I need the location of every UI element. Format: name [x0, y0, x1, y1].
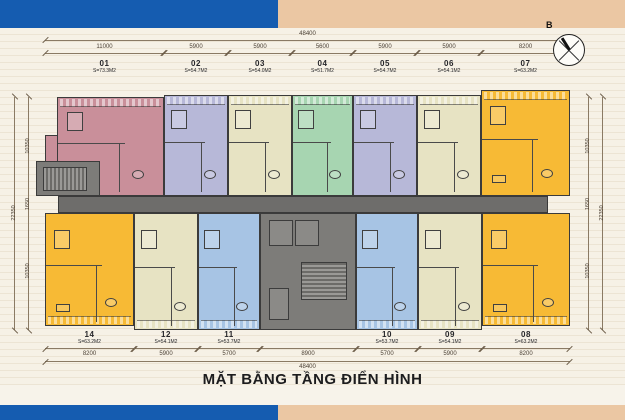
interior-wall — [390, 142, 391, 193]
table-symbol — [541, 169, 553, 178]
unit-02 — [164, 95, 228, 196]
interior-wall — [46, 265, 102, 266]
interior-wall — [201, 142, 202, 193]
bottom-band-blue — [0, 405, 278, 420]
balcony — [167, 97, 225, 105]
dim-bottom-4: 8900 — [260, 348, 356, 359]
unit-11-label: 11S=53.7M2 — [198, 331, 260, 345]
interior-wall — [165, 142, 205, 143]
table-symbol — [329, 170, 341, 179]
interior-wall — [171, 267, 172, 326]
dim-top-1: 11000 — [45, 42, 164, 54]
balcony — [48, 316, 131, 324]
unit-01-label: 01S=73.3M2 — [45, 60, 164, 74]
central-core — [260, 213, 356, 330]
unit-03 — [228, 95, 292, 196]
top-band-blue — [0, 0, 278, 28]
dim-left-seg-2: 1650 — [25, 184, 31, 224]
title-background-strip — [0, 385, 625, 405]
elevator — [269, 220, 293, 246]
interior-wall — [454, 142, 455, 193]
balcony — [201, 320, 257, 328]
unit-07 — [481, 90, 570, 196]
interior-wall — [354, 142, 394, 143]
interior-wall — [392, 267, 393, 326]
dim-right-seg-1: 10350 — [585, 126, 591, 166]
unit-10-label: 10S=53.7M2 — [356, 331, 418, 345]
unit-05-label: 05S=54.7M2 — [353, 60, 417, 74]
service-room — [269, 288, 289, 320]
unit-10 — [356, 213, 418, 330]
corridor — [58, 196, 548, 213]
dim-bottom-5: 5700 — [356, 348, 418, 359]
dim-bottom-1: 8200 — [45, 348, 134, 359]
dim-left-total: 22350 — [11, 193, 17, 233]
sofa-symbol — [493, 304, 507, 312]
table-symbol — [174, 302, 186, 311]
unit-06-label: 06S=54.1M2 — [417, 60, 481, 74]
unit-11 — [198, 213, 260, 330]
dim-top-3: 5900 — [228, 42, 292, 54]
balcony — [295, 97, 350, 105]
interior-wall — [483, 265, 538, 266]
dim-right-seg-2: 1650 — [585, 184, 591, 224]
bed-symbol — [141, 230, 157, 249]
dim-top-5: 5900 — [353, 42, 417, 54]
dim-bottom-2: 5900 — [134, 348, 198, 359]
balcony — [137, 320, 195, 328]
dim-top-total: 48400 — [45, 29, 570, 41]
balcony — [420, 97, 478, 105]
unit-09 — [418, 213, 482, 330]
bed-symbol — [491, 230, 507, 249]
bed-symbol — [490, 106, 506, 125]
bed-symbol — [298, 110, 314, 129]
bottom-band-peach — [278, 405, 625, 420]
balcony — [356, 97, 414, 105]
bed-symbol — [362, 230, 378, 249]
unit-14 — [45, 213, 134, 326]
stairs — [301, 262, 347, 300]
compass-icon — [553, 34, 585, 66]
balcony — [421, 320, 479, 328]
table-symbol — [105, 298, 117, 307]
table-symbol — [393, 170, 405, 179]
unit-12 — [134, 213, 198, 330]
elevator — [295, 220, 319, 246]
table-symbol — [394, 302, 406, 311]
bed-symbol — [171, 110, 187, 129]
interior-wall — [234, 267, 235, 326]
bed-symbol — [67, 112, 83, 131]
dim-bottom-7: 8200 — [482, 348, 570, 359]
interior-wall — [58, 143, 125, 144]
interior-wall — [119, 143, 120, 192]
unit-04-label: 04S=51.7M2 — [292, 60, 353, 74]
balcony — [359, 320, 415, 328]
unit-12-label: 12S=54.1M2 — [134, 331, 198, 345]
table-symbol — [236, 302, 248, 311]
balcony — [60, 99, 161, 107]
unit-07-label: 07S=63.2M2 — [481, 60, 570, 74]
interior-wall — [418, 142, 458, 143]
interior-wall — [532, 139, 533, 192]
interior-wall — [533, 265, 534, 322]
bed-symbol — [54, 230, 70, 249]
floor-plan-page: 48400 11000 5900 5900 5600 5900 5900 820… — [0, 0, 625, 420]
interior-wall — [199, 267, 237, 268]
balcony — [484, 92, 567, 100]
balcony — [231, 97, 289, 105]
unit-06 — [417, 95, 481, 196]
dim-left-seg-1: 10350 — [25, 126, 31, 166]
table-symbol — [542, 298, 554, 307]
interior-wall — [96, 265, 97, 322]
dim-bottom-3: 5700 — [198, 348, 260, 359]
dim-bottom-6: 5900 — [418, 348, 482, 359]
dim-right-seg-3: 10350 — [585, 251, 591, 291]
north-label: B — [546, 20, 553, 30]
stairs — [43, 167, 87, 191]
unit-04 — [292, 95, 353, 196]
interior-wall — [229, 142, 269, 143]
dim-left-seg-3: 10350 — [25, 251, 31, 291]
unit-03-label: 03S=54.0M2 — [228, 60, 292, 74]
interior-wall — [419, 267, 459, 268]
page-title: MẶT BẰNG TẦNG ĐIỂN HÌNH — [0, 371, 625, 388]
interior-wall — [357, 267, 395, 268]
interior-wall — [482, 139, 538, 140]
table-symbol — [457, 170, 469, 179]
unit-09-label: 09S=54.1M2 — [418, 331, 482, 345]
left-stair-core — [36, 161, 100, 196]
interior-wall — [265, 142, 266, 193]
bed-symbol — [204, 230, 220, 249]
table-symbol — [458, 302, 470, 311]
sofa-symbol — [492, 175, 506, 183]
dim-top-6: 5900 — [417, 42, 481, 54]
table-symbol — [132, 170, 144, 179]
sofa-symbol — [56, 304, 70, 312]
unit-08-label: 08S=63.2M2 — [482, 331, 570, 345]
unit-05 — [353, 95, 417, 196]
dim-top-2: 5900 — [164, 42, 228, 54]
dim-right-total: 22350 — [599, 193, 605, 233]
bed-symbol — [424, 110, 440, 129]
interior-wall — [135, 267, 175, 268]
table-symbol — [204, 170, 216, 179]
unit-14-label: 14S=63.2M2 — [45, 331, 134, 345]
interior-wall — [327, 142, 328, 193]
interior-wall — [455, 267, 456, 326]
table-symbol — [268, 170, 280, 179]
top-band-peach — [278, 0, 625, 28]
unit-08 — [482, 213, 570, 326]
bed-symbol — [425, 230, 441, 249]
balcony — [485, 316, 567, 324]
dim-top-4: 5600 — [292, 42, 353, 54]
unit-02-label: 02S=54.7M2 — [164, 60, 228, 74]
bed-symbol — [235, 110, 251, 129]
bed-symbol — [360, 110, 376, 129]
interior-wall — [293, 142, 331, 143]
